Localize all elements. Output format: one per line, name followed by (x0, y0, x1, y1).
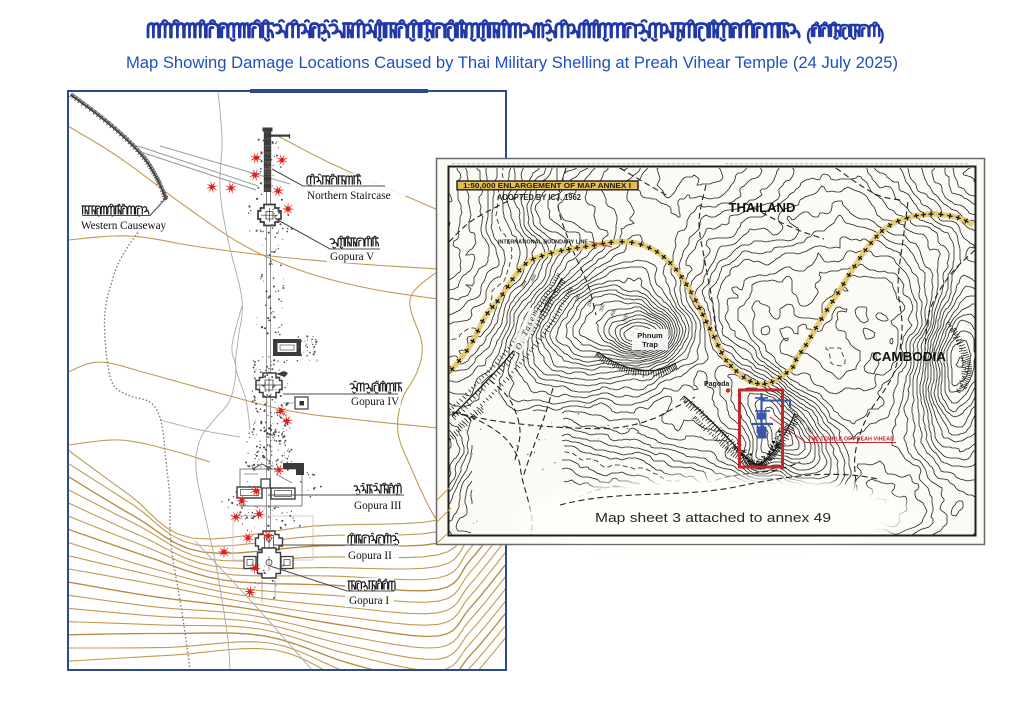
svg-text:CAMBODIA: CAMBODIA (872, 349, 946, 364)
svg-text:THE TEMPLE OF PREAH VIHEAR: THE TEMPLE OF PREAH VIHEAR (808, 437, 894, 443)
svg-text:Phnum: Phnum (637, 331, 663, 340)
svg-text:INTERNATIONAL BOUNDARY LINE: INTERNATIONAL BOUNDARY LINE (498, 240, 589, 246)
svg-text:1:50,000 ENLARGEMENT OF MAP AN: 1:50,000 ENLARGEMENT OF MAP ANNEX I (463, 183, 631, 190)
svg-text:Pagoda: Pagoda (704, 381, 729, 388)
svg-text:THAILAND: THAILAND (729, 200, 796, 215)
svg-text:Trap: Trap (642, 340, 658, 349)
svg-text:ADOPTED BY ICJ. 1962: ADOPTED BY ICJ. 1962 (497, 193, 581, 202)
svg-text:Map sheet 3 attached to anne: Map sheet 3 attached to annex 49 (595, 510, 831, 525)
